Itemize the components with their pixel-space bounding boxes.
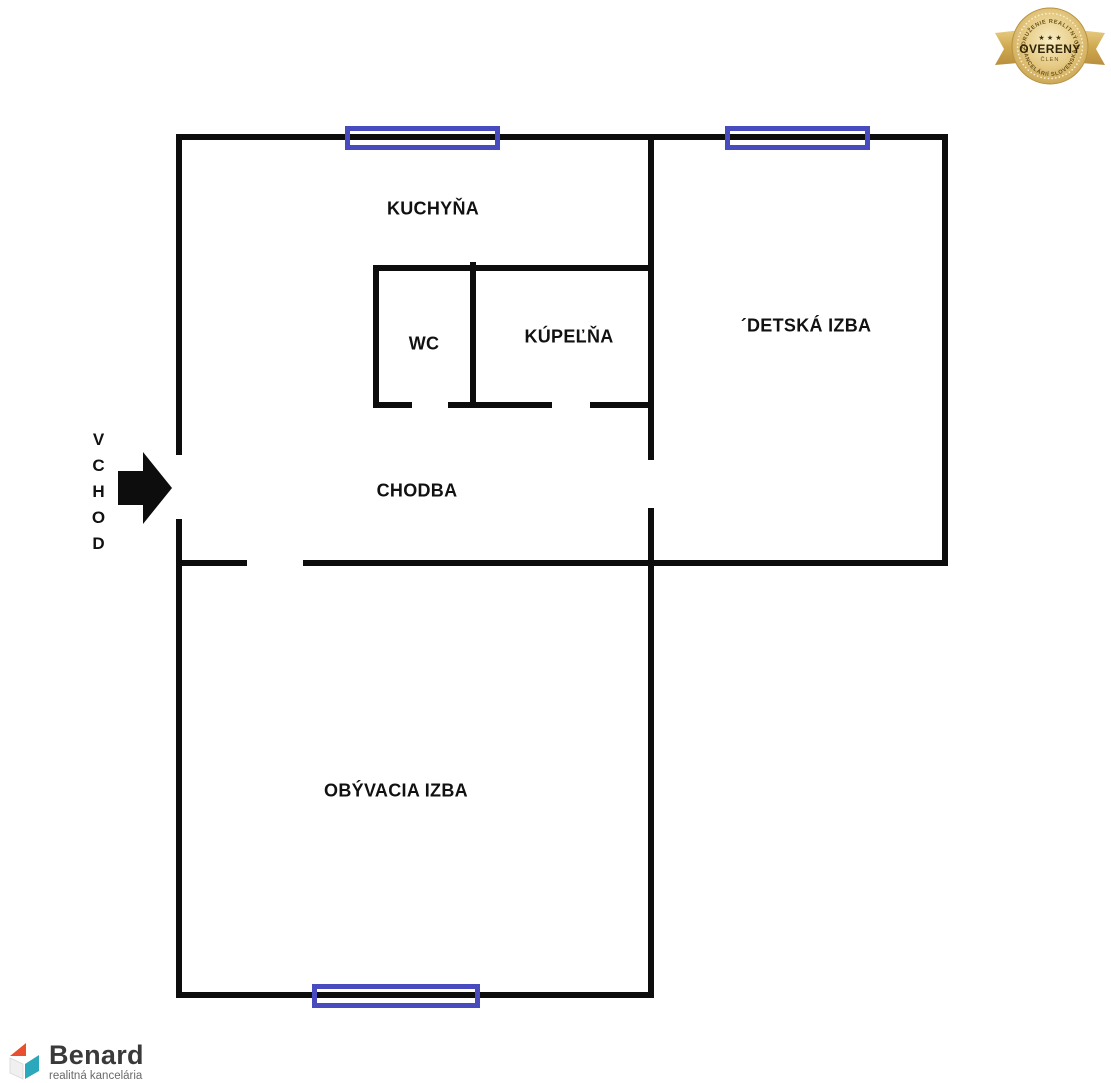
agency-name: Benard: [49, 1042, 144, 1069]
wall-mid-vertical-lower: [648, 508, 654, 998]
room-label-kitchen: KUCHYŇA: [387, 199, 479, 220]
verified-member-badge: ZDRUŽENIE REALITNÝCH KANCELÁRIÍ SLOVENSK…: [995, 4, 1105, 88]
wall-wcbox-bottom-2: [448, 402, 552, 408]
wall-wcbox-top: [373, 265, 652, 271]
wall-hall-divider-right: [303, 560, 948, 566]
agency-logo: Benard realitná kancelária: [8, 1042, 144, 1083]
wall-wcbox-bottom-1: [373, 402, 412, 408]
wall-mid-vertical-upper: [648, 134, 654, 460]
wall-wcbox-left: [373, 265, 379, 408]
wall-left-lower: [176, 519, 182, 998]
badge-title: OVERENÝ: [1019, 41, 1080, 56]
entrance-arrow-icon: [118, 448, 174, 528]
window-living-room: [312, 984, 480, 1008]
wall-hall-divider-left: [176, 560, 247, 566]
room-label-wc: WC: [409, 334, 440, 355]
entrance-label: VCHOD: [88, 430, 108, 560]
window-kids-room: [725, 126, 870, 150]
room-label-bathroom: KÚPEĽŇA: [524, 327, 613, 348]
room-label-living-room: OBÝVACIA IZBA: [324, 781, 468, 802]
wall-wcbox-bottom-3: [590, 402, 652, 408]
badge-subtitle: ČLEN: [1041, 56, 1060, 63]
room-label-kids-room: ´DETSKÁ IZBA: [741, 316, 872, 337]
agency-logo-icon: [8, 1042, 41, 1080]
window-kitchen: [345, 126, 500, 150]
wall-right: [942, 134, 948, 566]
wall-wcbox-divider: [470, 262, 476, 408]
badge-stars: ★ ★ ★: [1038, 34, 1061, 42]
room-label-hallway: CHODBA: [377, 481, 458, 502]
wall-left-upper: [176, 134, 182, 455]
agency-tagline: realitná kancelária: [49, 1071, 144, 1083]
